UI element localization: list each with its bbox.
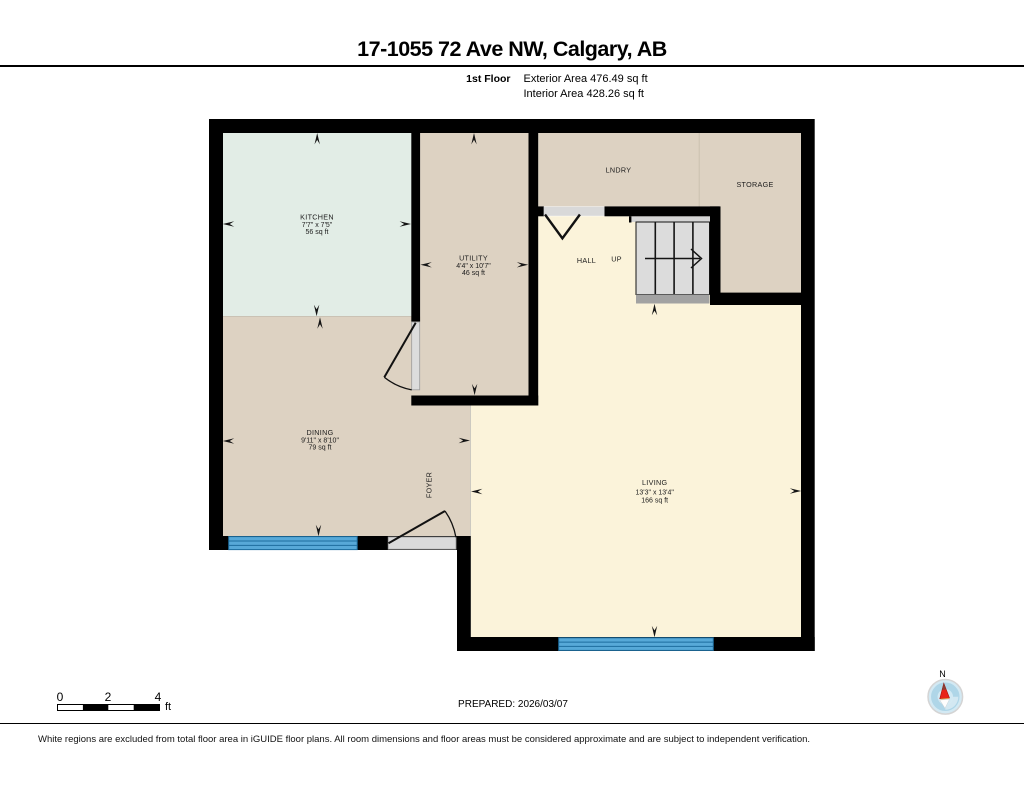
svg-text:KITCHEN: KITCHEN (300, 213, 334, 222)
svg-text:4'4" x 10'7": 4'4" x 10'7" (456, 263, 491, 270)
svg-text:HALL: HALL (577, 256, 596, 265)
svg-text:166 sq ft: 166 sq ft (641, 498, 668, 505)
svg-text:13'3" x 13'4": 13'3" x 13'4" (636, 490, 675, 497)
svg-text:DINING: DINING (307, 428, 334, 437)
svg-text:46 sq ft: 46 sq ft (462, 270, 485, 277)
svg-text:79 sq ft: 79 sq ft (309, 445, 332, 452)
svg-text:9'11" x 8'10": 9'11" x 8'10" (301, 437, 339, 444)
svg-text:FOYER: FOYER (425, 472, 434, 498)
svg-text:UTILITY: UTILITY (459, 253, 488, 262)
svg-text:UP: UP (611, 254, 622, 263)
svg-text:56 sq ft: 56 sq ft (306, 229, 329, 236)
svg-text:LNDRY: LNDRY (606, 166, 632, 175)
svg-text:7'7" x 7'5": 7'7" x 7'5" (302, 222, 333, 229)
svg-text:STORAGE: STORAGE (736, 180, 773, 189)
svg-text:LIVING: LIVING (642, 478, 667, 487)
svg-text:N: N (939, 669, 946, 679)
